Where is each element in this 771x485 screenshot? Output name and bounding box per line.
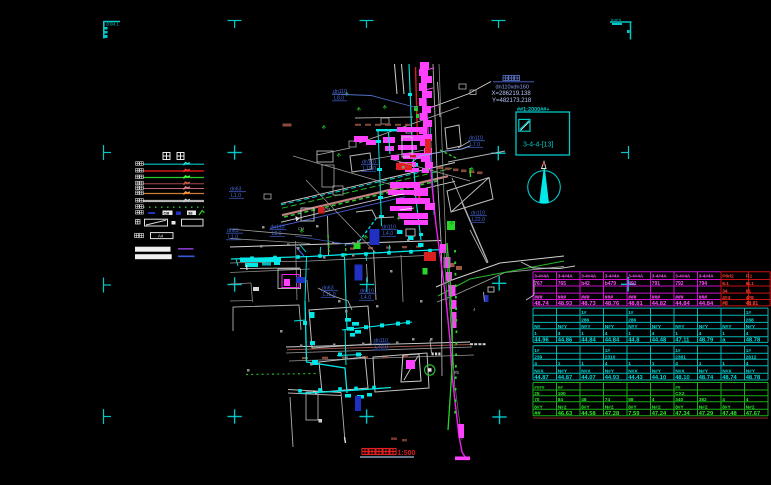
svg-text:7.59: 7.59: [628, 411, 640, 417]
svg-text:44.84: 44.84: [699, 301, 714, 307]
svg-text:44.84: 44.84: [675, 301, 690, 307]
svg-text:4: 4: [699, 331, 702, 337]
svg-text:N#Y: N#Y: [699, 368, 709, 374]
svg-text:###: ###: [581, 295, 590, 301]
svg-text:48: 48: [581, 397, 587, 403]
svg-text:#=#+#: #=#+#: [611, 18, 621, 22]
svg-text:8#Y: 8#Y: [675, 404, 684, 410]
svg-text:44.93: 44.93: [605, 375, 620, 381]
svg-text:N#Y: N#Y: [746, 324, 756, 330]
svg-text:48.79: 48.79: [699, 338, 714, 344]
svg-text:3-4#4A: 3-4#4A: [652, 274, 668, 279]
svg-text:791: 791: [652, 281, 661, 287]
svg-text:48.74: 48.74: [699, 375, 714, 381]
svg-text:CM: CM: [325, 208, 331, 212]
svg-text:1: 1: [581, 361, 584, 367]
svg-text:4: 4: [605, 331, 608, 337]
svg-text:3-4#4A: 3-4#4A: [534, 274, 550, 279]
svg-text:1: 1: [675, 331, 678, 337]
svg-text:A4: A4: [158, 234, 164, 239]
svg-text:48.81: 48.81: [746, 301, 759, 307]
svg-text:1#: 1#: [628, 310, 634, 316]
svg-text:48.78: 48.78: [746, 338, 761, 344]
svg-text:44.43: 44.43: [628, 375, 643, 381]
svg-text:1#: 1#: [605, 348, 611, 354]
svg-text:48.81: 48.81: [628, 301, 643, 307]
svg-text:44.84: 44.84: [605, 338, 620, 344]
svg-text:44.84: 44.84: [581, 338, 596, 344]
svg-text:2381: 2381: [675, 354, 686, 360]
svg-text:N#: N#: [534, 324, 540, 330]
svg-text:47.67: 47.67: [746, 411, 761, 417]
svg-text:###: ###: [628, 295, 637, 301]
svg-text:8#Y: 8#Y: [628, 404, 637, 410]
svg-text:3-4-4-[13]: 3-4-4-[13]: [523, 142, 553, 149]
svg-text:3-4#4A: 3-4#4A: [581, 274, 597, 279]
svg-text:P.1: P.1: [746, 274, 753, 280]
svg-text:N#Y: N#Y: [581, 324, 591, 330]
svg-text:48.10: 48.10: [675, 375, 690, 381]
svg-text:1#: 1#: [746, 310, 752, 316]
svg-text:N#Y: N#Y: [675, 324, 685, 330]
svg-text:48.74: 48.74: [722, 375, 737, 381]
svg-text:###: ###: [605, 295, 614, 301]
svg-text:N#2: N#2: [605, 404, 614, 410]
svg-text:N#Y: N#Y: [605, 368, 615, 374]
svg-text:N#2: N#2: [558, 404, 567, 410]
svg-text:b42: b42: [581, 281, 590, 287]
svg-text:N#X: N#X: [534, 368, 544, 374]
svg-text:N#Y: N#Y: [652, 368, 662, 374]
svg-text:288: 288: [746, 317, 754, 323]
svg-text:88: 88: [628, 397, 634, 403]
svg-text:1#: 1#: [534, 348, 540, 354]
svg-text:4: 4: [746, 361, 749, 367]
svg-text:###: ###: [652, 295, 661, 301]
svg-text:44.07: 44.07: [581, 375, 596, 381]
svg-text:N#Y: N#Y: [746, 368, 756, 374]
svg-text:1: 1: [652, 361, 655, 367]
svg-text:239: 239: [534, 354, 542, 360]
svg-text:###: ###: [558, 295, 567, 301]
svg-text:N#Y: N#Y: [558, 368, 568, 374]
svg-text:##: ##: [558, 385, 564, 390]
svg-text:47.29: 47.29: [699, 411, 714, 417]
svg-text:P8d2: P8d2: [722, 274, 734, 280]
svg-text:4: 4: [558, 331, 561, 337]
svg-text:X=286219.138: X=286219.138: [492, 91, 532, 97]
svg-text:N#Y: N#Y: [628, 324, 638, 330]
svg-text:4: 4: [605, 361, 608, 367]
svg-text:#b: #b: [454, 370, 460, 375]
svg-text:8#Y: 8#Y: [581, 404, 590, 410]
svg-text:3-4#4A: 3-4#4A: [699, 274, 715, 279]
svg-text:##: ##: [534, 411, 541, 417]
svg-text:b479: b479: [605, 281, 617, 287]
svg-text:8#Y: 8#Y: [534, 404, 543, 410]
svg-text:4: 4: [746, 331, 749, 337]
svg-text:N#Y: N#Y: [652, 324, 662, 330]
svg-text:47.28: 47.28: [605, 411, 620, 417]
svg-text:2612: 2612: [746, 354, 757, 360]
svg-text:Y=482173.218: Y=482173.218: [492, 98, 532, 104]
svg-text:1: 1: [558, 361, 561, 367]
svg-text:N#2: N#2: [652, 404, 661, 410]
svg-text:3-4#4A: 3-4#4A: [628, 274, 644, 279]
svg-text:44.48: 44.48: [652, 338, 667, 344]
svg-text:84: 84: [558, 397, 564, 403]
svg-text:1:500: 1:500: [398, 450, 416, 457]
svg-text:44.10: 44.10: [652, 375, 667, 381]
svg-text:382: 382: [699, 397, 707, 403]
svg-text:1: 1: [581, 331, 584, 337]
svg-text:N#X: N#X: [722, 368, 732, 374]
svg-text:CX2: CX2: [675, 391, 685, 397]
svg-text:###: ###: [675, 295, 684, 301]
svg-text:dn110xdn160: dn110xdn160: [496, 84, 530, 90]
svg-text:8.1: 8.1: [722, 281, 729, 287]
svg-text:765: 765: [558, 281, 567, 287]
svg-text:4#8: 4#8: [746, 295, 754, 301]
svg-text:286: 286: [581, 317, 589, 323]
svg-text:N#Y: N#Y: [605, 324, 615, 330]
svg-text:4: 4: [652, 397, 655, 403]
svg-text:1#: 1#: [581, 310, 587, 316]
svg-text:4: 4: [652, 331, 655, 337]
svg-text:3-4#4A: 3-4#4A: [558, 274, 574, 279]
svg-text:2004.1: 2004.1: [106, 22, 119, 27]
svg-text:81: 81: [746, 288, 752, 294]
svg-text:N#X: N#X: [581, 368, 591, 374]
svg-text:N#2: N#2: [746, 404, 755, 410]
svg-text:####: ####: [534, 385, 545, 390]
svg-text:44.87: 44.87: [558, 375, 573, 381]
svg-text:47.34: 47.34: [675, 411, 690, 417]
svg-text:1: 1: [628, 331, 631, 337]
svg-text:794: 794: [699, 281, 708, 287]
svg-text:4: 4: [675, 361, 678, 367]
svg-text:74: 74: [605, 397, 611, 403]
svg-text:48.74: 48.74: [534, 301, 549, 307]
svg-text:47.11: 47.11: [675, 338, 690, 344]
svg-text:44.58: 44.58: [581, 411, 596, 417]
svg-text:44.82: 44.82: [652, 301, 667, 307]
svg-text:N#Y: N#Y: [558, 324, 568, 330]
svg-text:1: 1: [722, 361, 725, 367]
svg-text:4: 4: [722, 397, 725, 403]
svg-text:38: 38: [188, 210, 193, 215]
svg-text:48.78: 48.78: [746, 375, 761, 381]
svg-text:3-4#4A: 3-4#4A: [675, 274, 691, 279]
svg-text:4: 4: [534, 361, 537, 367]
svg-text:1: 1: [722, 331, 725, 337]
svg-text:340: 340: [675, 397, 683, 403]
svg-text:2310: 2310: [605, 354, 616, 360]
svg-text:44.86: 44.86: [558, 338, 573, 344]
svg-text:4: 4: [746, 397, 749, 403]
svg-text:70: 70: [534, 397, 540, 403]
svg-text:48.76: 48.76: [605, 301, 620, 307]
svg-text:1: 1: [699, 361, 702, 367]
svg-text:N#X: N#X: [628, 368, 638, 374]
svg-text:###: ###: [699, 295, 708, 301]
svg-text:44.96: 44.96: [534, 338, 549, 344]
svg-text:N#2: N#2: [699, 404, 708, 410]
svg-text:3-4#4A: 3-4#4A: [605, 274, 621, 279]
svg-text:46.63: 46.63: [558, 411, 573, 417]
svg-text:48.93: 48.93: [558, 301, 573, 307]
svg-text:N#Y: N#Y: [722, 324, 732, 330]
svg-text:8L1: 8L1: [746, 281, 755, 287]
svg-text:1#: 1#: [675, 348, 681, 354]
svg-text:34: 34: [722, 288, 728, 294]
svg-text:###: ###: [534, 295, 543, 301]
svg-text:44.8: 44.8: [628, 338, 640, 344]
svg-text:100: 100: [558, 391, 566, 397]
svg-text:792: 792: [675, 281, 684, 287]
svg-text:8#Y: 8#Y: [722, 404, 731, 410]
svg-text:48.73: 48.73: [581, 301, 596, 307]
svg-text:47.48: 47.48: [722, 411, 737, 417]
svg-text:44.87: 44.87: [534, 375, 549, 381]
svg-text:491: 491: [628, 281, 637, 287]
svg-text:N#X: N#X: [675, 368, 685, 374]
svg-text:286: 286: [628, 317, 636, 323]
svg-text:##: ##: [675, 385, 681, 390]
svg-text:25: 25: [534, 391, 540, 397]
svg-text:CB: CB: [164, 210, 170, 215]
svg-text:47.24: 47.24: [652, 411, 667, 417]
svg-text:1: 1: [534, 331, 537, 337]
svg-text:1: 1: [628, 361, 631, 367]
svg-text:#8: #8: [722, 301, 728, 307]
svg-text:767: 767: [534, 281, 543, 287]
svg-text:N#Y: N#Y: [699, 324, 709, 330]
svg-text:4#4: 4#4: [722, 295, 730, 301]
svg-text:1#: 1#: [746, 348, 752, 354]
